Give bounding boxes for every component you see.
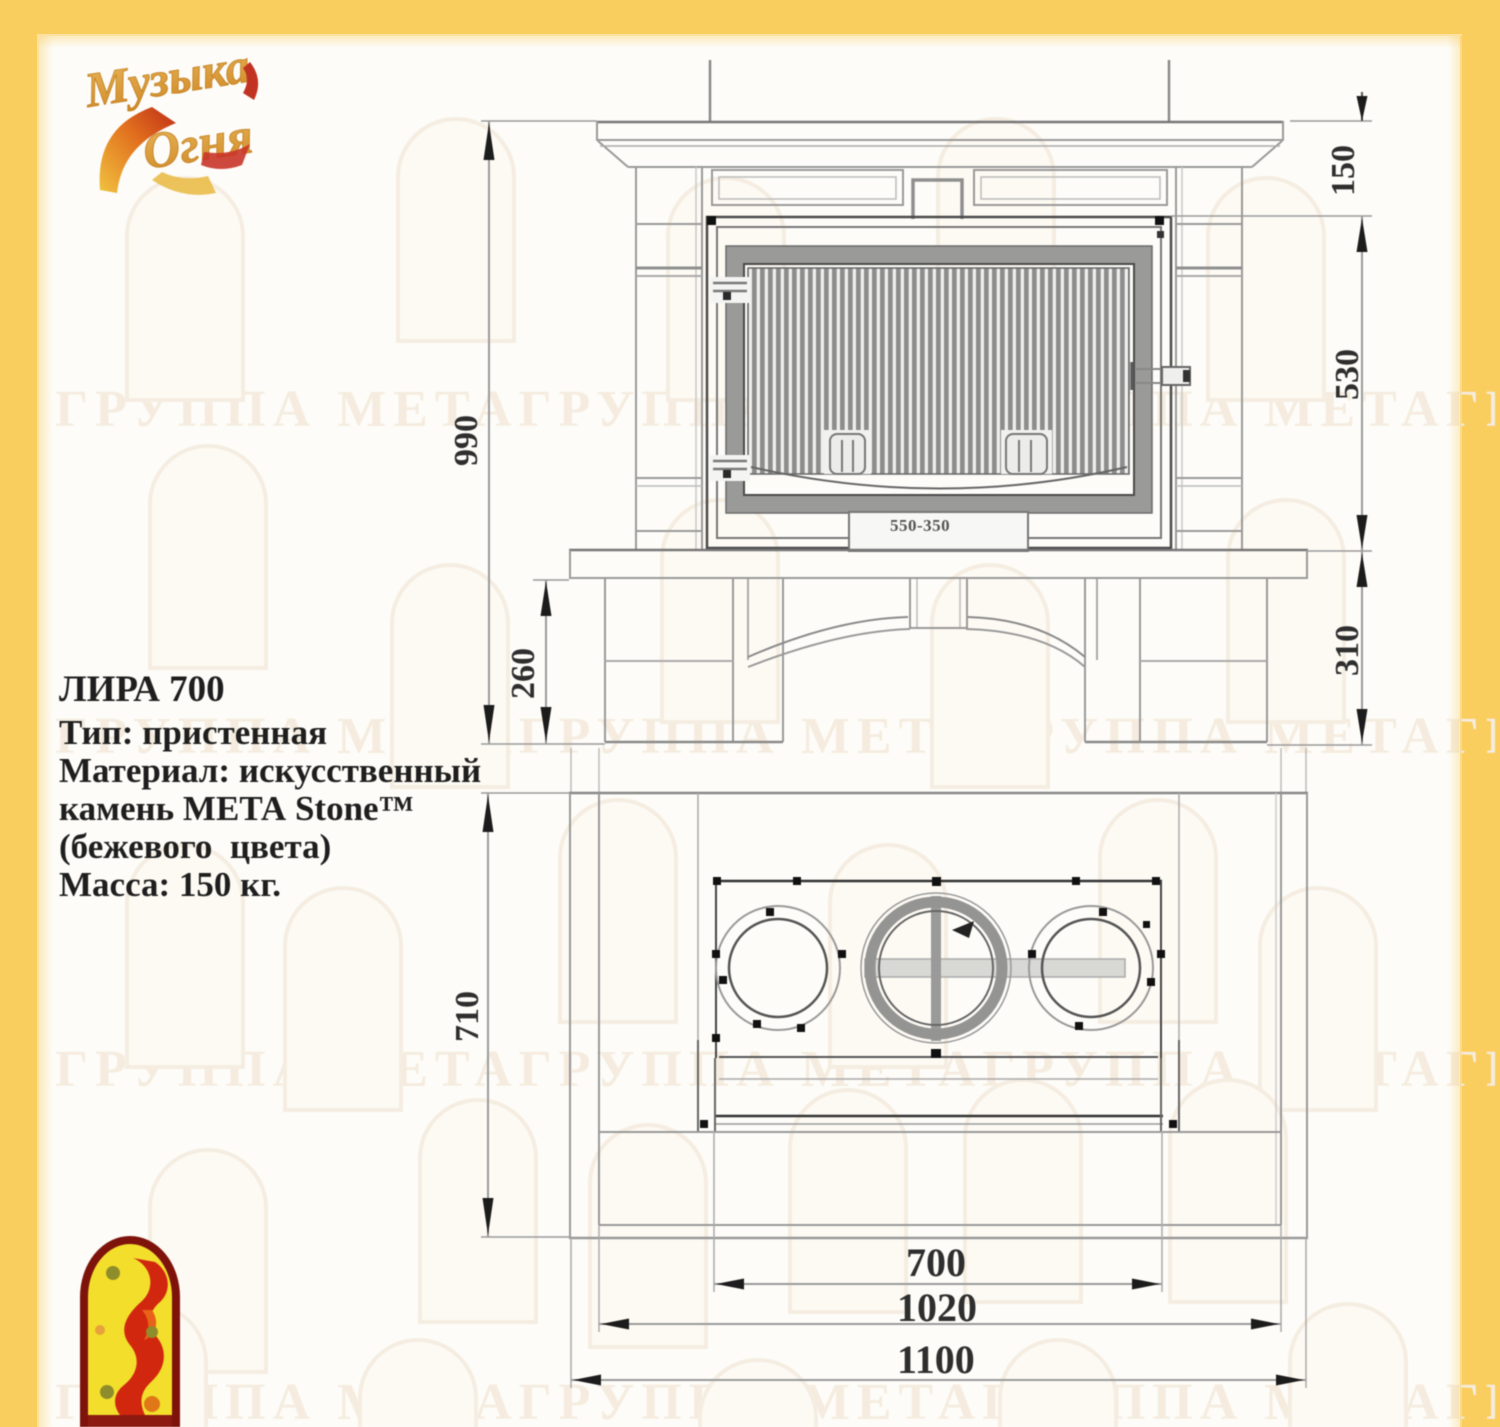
svg-text:1100: 1100	[897, 1337, 975, 1382]
svg-text:530: 530	[1329, 349, 1366, 400]
svg-text:700: 700	[906, 1240, 966, 1285]
svg-text:990: 990	[448, 415, 485, 466]
svg-text:1020: 1020	[897, 1285, 977, 1330]
svg-text:150: 150	[1325, 145, 1362, 196]
svg-text:710: 710	[449, 991, 486, 1042]
svg-text:310: 310	[1329, 625, 1366, 676]
svg-text:260: 260	[505, 648, 542, 699]
svg-text:550-350: 550-350	[890, 516, 950, 535]
svg-text:Музыка: Музыка	[80, 38, 253, 118]
